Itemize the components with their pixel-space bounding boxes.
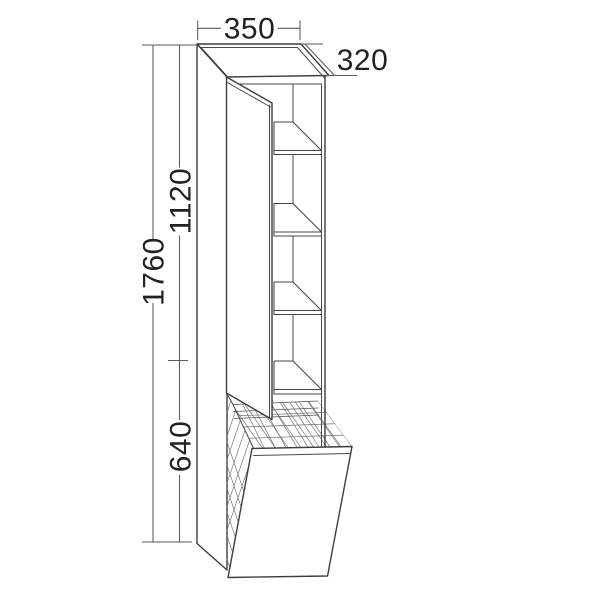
cabinet-technical-drawing: 350 320 1760 1120 640 <box>0 0 600 600</box>
shelf <box>274 282 322 315</box>
door-panel <box>227 77 273 420</box>
shelf <box>274 122 322 155</box>
tilt-out-door <box>228 447 352 578</box>
dimension-total-height-label: 1760 <box>138 237 171 306</box>
shelves <box>274 122 322 394</box>
cabinet-left-side <box>197 44 227 570</box>
dimension-350: 350 <box>198 13 300 46</box>
tilt-door-panel <box>228 447 352 578</box>
dimension-1120: 1120 <box>165 45 198 361</box>
open-door <box>227 77 273 420</box>
dimension-upper-height-label: 1120 <box>165 168 198 235</box>
dimension-width-label: 350 <box>224 13 276 46</box>
shelf <box>274 361 322 394</box>
dimension-depth-label: 320 <box>337 44 389 77</box>
dimension-lower-height-label: 640 <box>165 421 198 473</box>
shelf <box>274 204 322 237</box>
dimension-640: 640 <box>165 361 198 543</box>
